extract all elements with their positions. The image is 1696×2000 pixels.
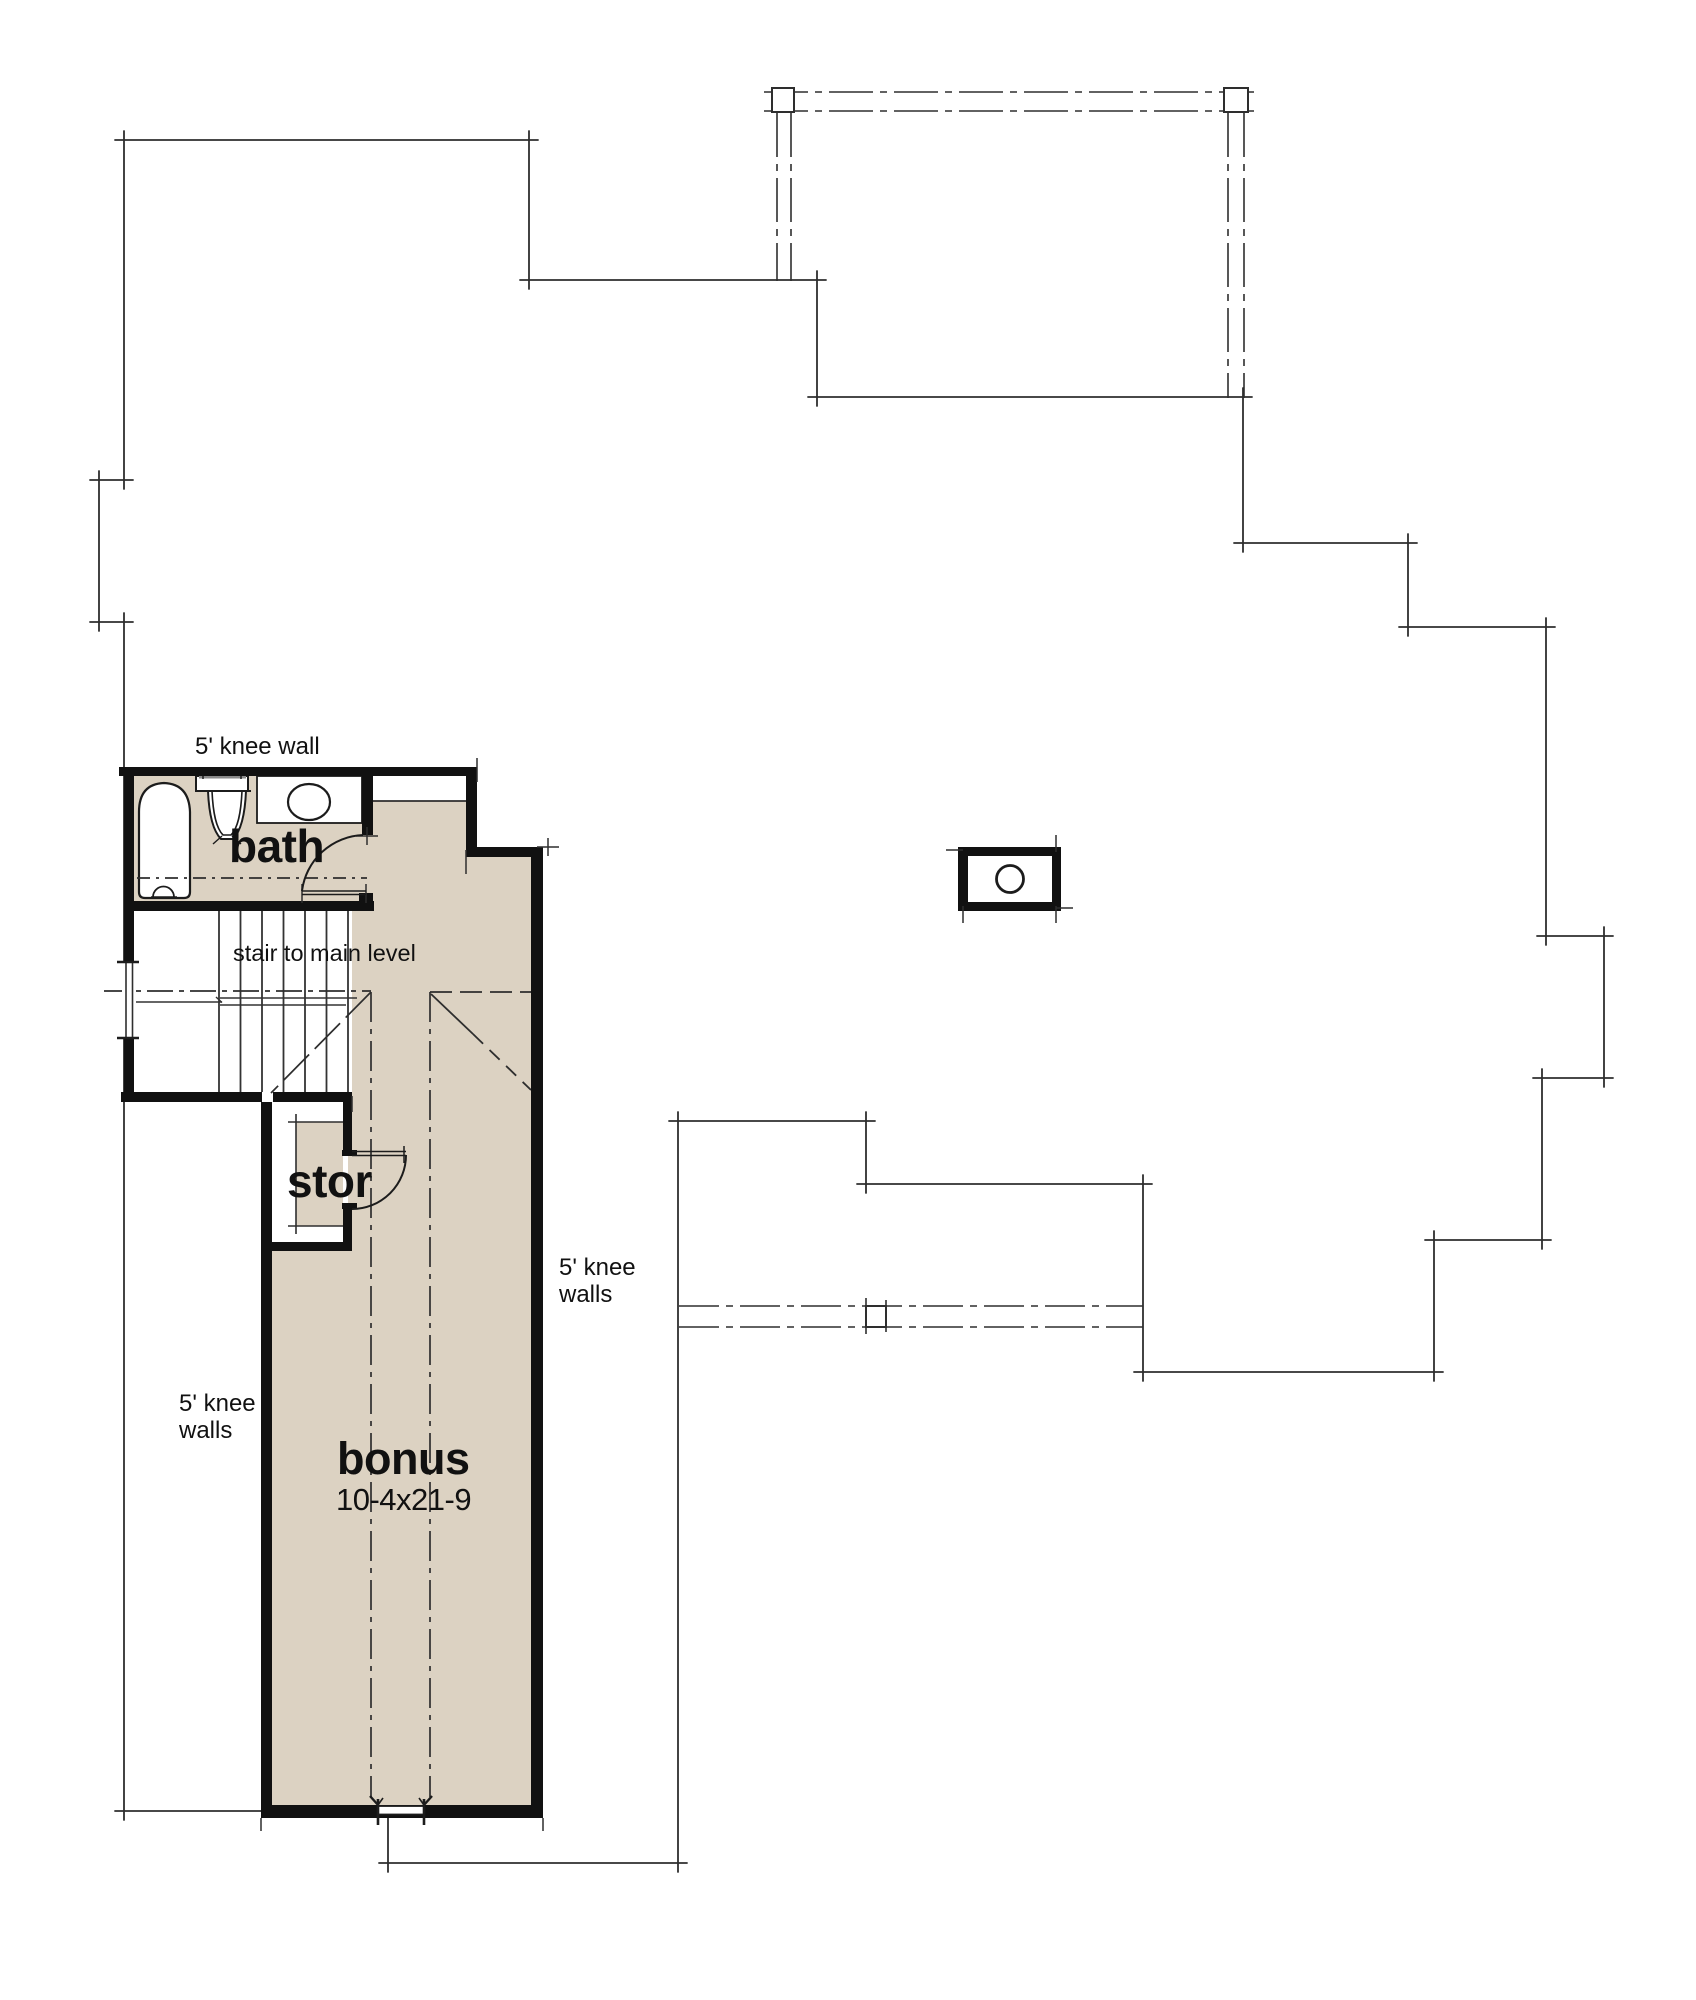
svg-text:walls: walls bbox=[558, 1281, 612, 1308]
svg-text:5' knee: 5' knee bbox=[559, 1254, 636, 1281]
svg-text:stor: stor bbox=[287, 1155, 373, 1207]
svg-text:5' knee wall: 5' knee wall bbox=[195, 733, 320, 760]
svg-text:walls: walls bbox=[178, 1417, 232, 1444]
svg-text:bonus: bonus bbox=[337, 1433, 469, 1484]
svg-text:stair to main level: stair to main level bbox=[233, 940, 416, 966]
svg-text:10-4x21-9: 10-4x21-9 bbox=[336, 1482, 471, 1517]
svg-text:bath: bath bbox=[229, 820, 324, 872]
svg-text:5' knee: 5' knee bbox=[179, 1390, 256, 1417]
